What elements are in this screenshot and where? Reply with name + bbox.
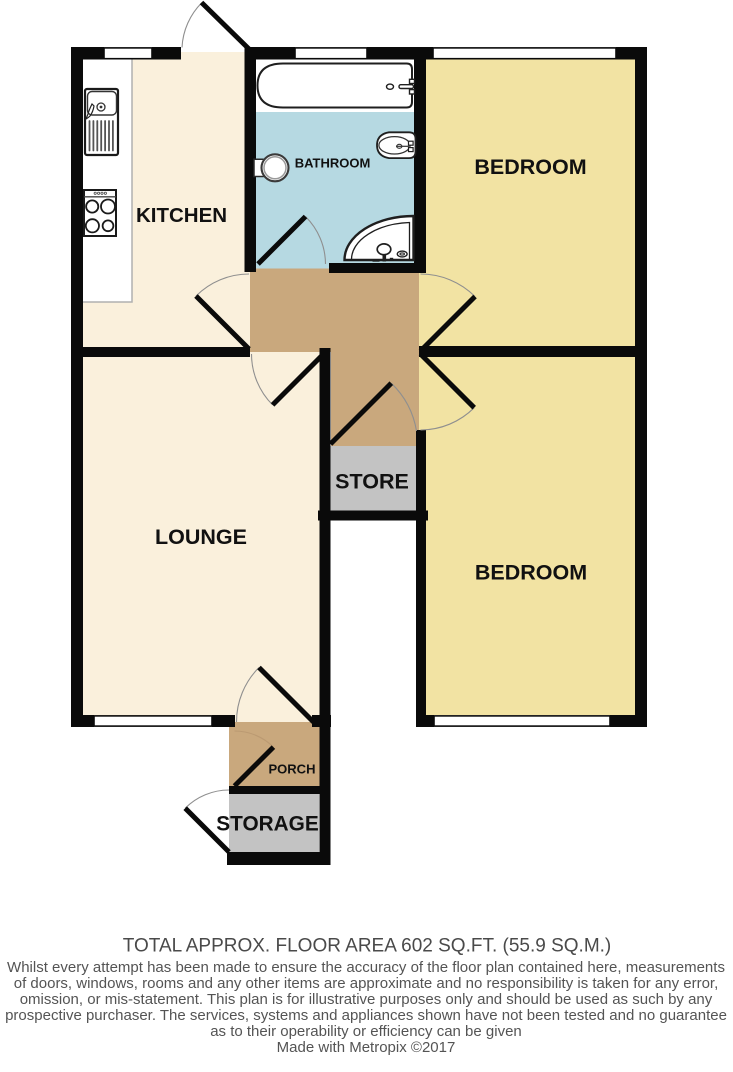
svg-text:KITCHEN: KITCHEN — [136, 204, 227, 227]
svg-text:Made with Metropix ©2017: Made with Metropix ©2017 — [277, 1039, 456, 1056]
svg-text:TOTAL APPROX. FLOOR AREA 602 S: TOTAL APPROX. FLOOR AREA 602 SQ.FT. (55.… — [123, 936, 612, 957]
svg-text:omission, or mis-statement. Th: omission, or mis-statement. This plan is… — [20, 991, 713, 1008]
svg-text:PORCH: PORCH — [269, 762, 316, 777]
svg-text:BEDROOM: BEDROOM — [474, 155, 586, 179]
svg-text:STORAGE: STORAGE — [216, 813, 319, 836]
svg-text:as to their operability or eff: as to their operability or efficiency ca… — [210, 1023, 522, 1040]
svg-text:BATHROOM: BATHROOM — [295, 156, 371, 171]
svg-text:LOUNGE: LOUNGE — [155, 525, 247, 549]
svg-text:prospective purchaser. The ser: prospective purchaser. The services, sys… — [5, 1007, 727, 1024]
svg-text:of doors, windows, rooms and a: of doors, windows, rooms and any other i… — [14, 975, 719, 992]
svg-text:BEDROOM: BEDROOM — [475, 561, 587, 585]
svg-text:Whilst every attempt has been: Whilst every attempt has been made to en… — [7, 959, 725, 976]
svg-text:STORE: STORE — [335, 470, 409, 494]
